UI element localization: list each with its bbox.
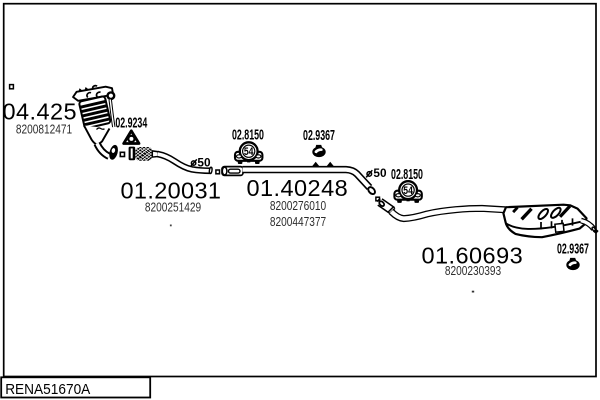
svg-text:8200251429: 8200251429 (145, 200, 201, 214)
svg-text:RENA51670A: RENA51670A (5, 380, 91, 396)
svg-text:50: 50 (197, 156, 211, 170)
svg-text:8200276010: 8200276010 (270, 199, 327, 213)
svg-text:8200230393: 8200230393 (445, 264, 501, 278)
svg-text:54: 54 (244, 146, 254, 158)
svg-text:02.9367: 02.9367 (557, 240, 589, 257)
svg-text:01.40248: 01.40248 (247, 175, 349, 201)
svg-text:04.425: 04.425 (3, 98, 78, 124)
svg-text:02.9234: 02.9234 (115, 114, 147, 131)
svg-text:8200447377: 8200447377 (270, 215, 326, 229)
svg-text:02.9367: 02.9367 (303, 127, 335, 144)
svg-text:02.8150: 02.8150 (232, 126, 264, 143)
svg-text:54: 54 (403, 185, 413, 197)
svg-text:8200812471: 8200812471 (16, 122, 72, 136)
svg-text:50: 50 (373, 166, 387, 180)
